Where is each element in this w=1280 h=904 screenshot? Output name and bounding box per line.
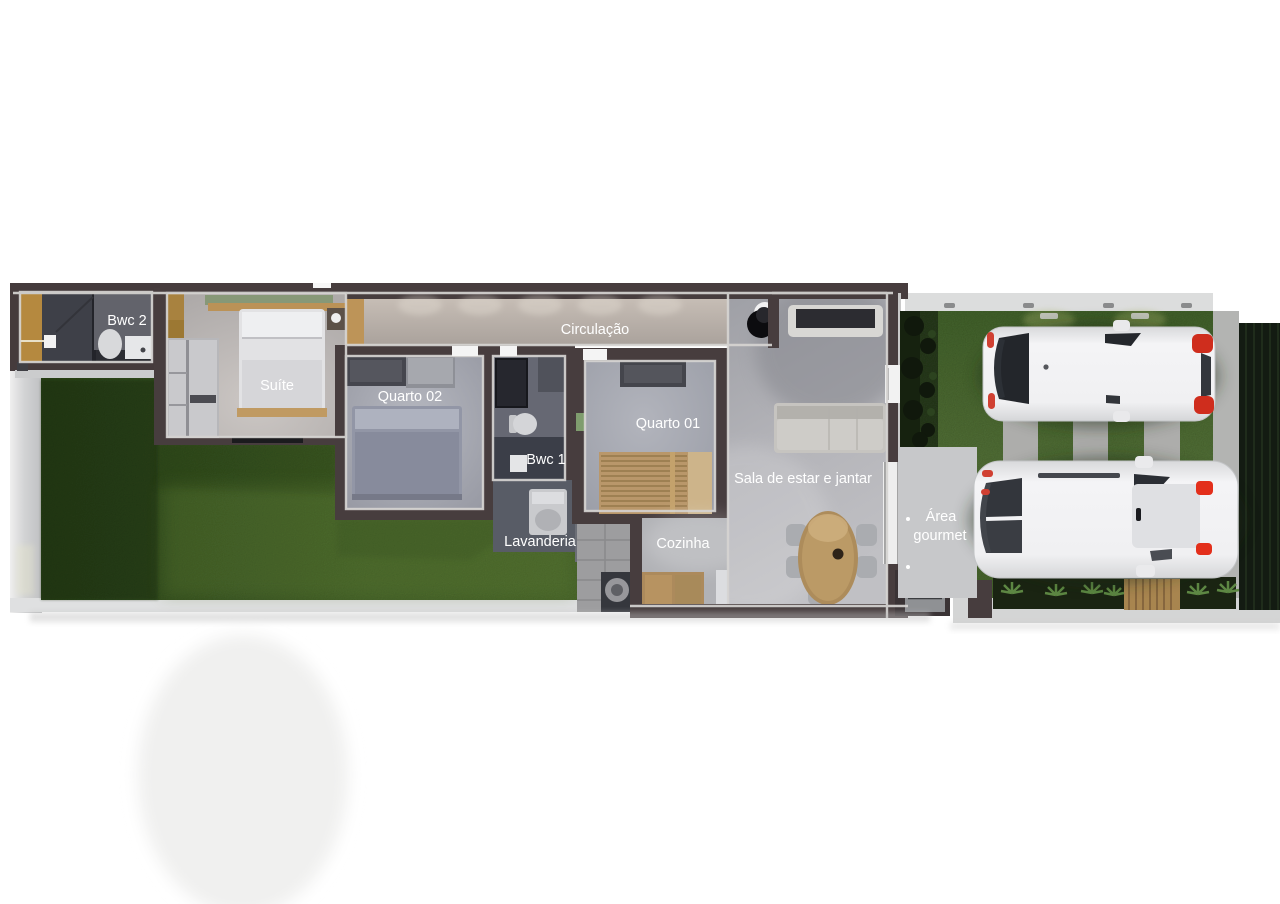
svg-text:Bwc 2: Bwc 2 <box>107 313 147 329</box>
svg-text:Quarto 02: Quarto 02 <box>378 389 443 405</box>
svg-text:Quarto 01: Quarto 01 <box>636 416 701 432</box>
svg-text:Sala de estar e jantar: Sala de estar e jantar <box>734 471 872 487</box>
svg-text:Circulação: Circulação <box>561 322 630 338</box>
svg-text:Lavanderia: Lavanderia <box>504 534 577 550</box>
svg-text:gourmet: gourmet <box>913 528 966 544</box>
svg-text:Área: Área <box>926 508 958 525</box>
svg-text:Cozinha: Cozinha <box>656 536 710 552</box>
svg-text:Suíte: Suíte <box>260 378 294 394</box>
svg-text:Bwc 1: Bwc 1 <box>526 452 566 468</box>
